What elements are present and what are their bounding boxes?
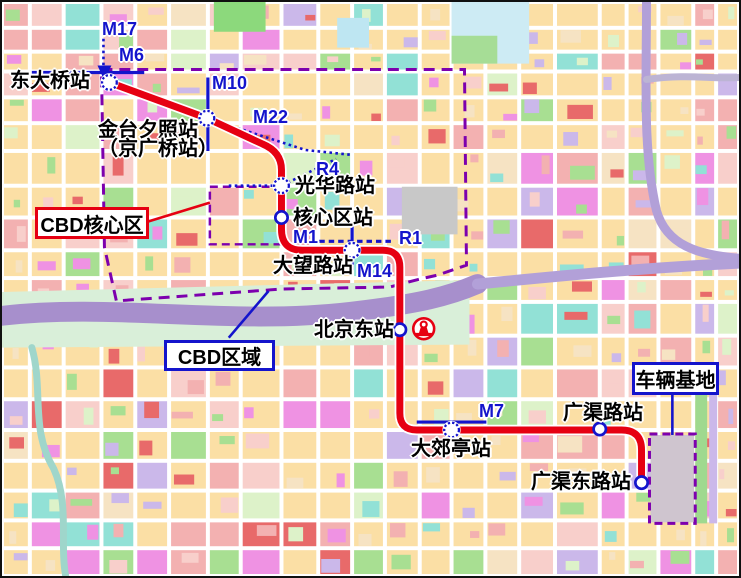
map-feature: [452, 36, 498, 64]
map-feature: [647, 77, 739, 80]
station-marker-interchange-4: [345, 243, 360, 258]
station-marker-7: [594, 423, 606, 435]
map-canvas: [2, 2, 739, 576]
map-feature: [709, 392, 717, 523]
station-marker-3: [275, 211, 287, 223]
station-marker-interchange-0: [102, 75, 117, 90]
station-marker-interchange-2: [274, 178, 289, 193]
station-marker-interchange-6: [444, 423, 459, 438]
station-marker-interchange-1: [200, 111, 215, 126]
map-feature: [650, 435, 694, 522]
station-marker-5: [394, 324, 406, 336]
map-feature: [214, 2, 266, 32]
map-feature: [402, 187, 458, 235]
map-feature: [337, 18, 369, 48]
station-marker-8: [635, 476, 647, 488]
cbd-metro-map: 东大桥站 金台夕照站（京广桥站） 光华路站 核心区站 大望路站 北京东站 大郊亭…: [0, 0, 741, 578]
map-feature: [695, 392, 707, 523]
